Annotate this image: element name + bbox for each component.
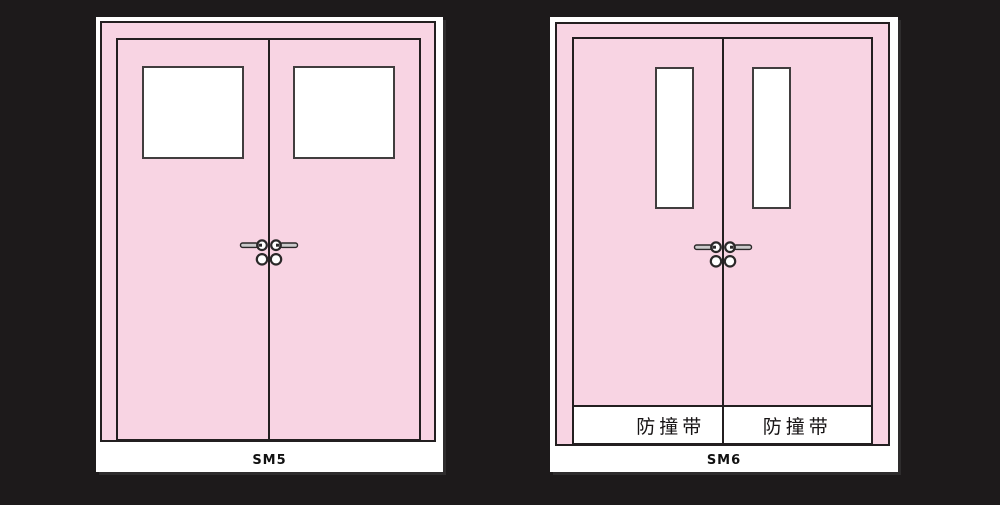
impact-band-label: 防撞带 xyxy=(763,412,832,439)
lock-cylinder-icon xyxy=(270,254,280,264)
lock-cylinder-icon xyxy=(724,256,734,266)
vision-panel xyxy=(142,66,244,159)
lever-handle-icon xyxy=(240,240,266,250)
door-hardware xyxy=(238,236,300,272)
door-hardware-icon xyxy=(692,238,754,274)
canvas: SM5 防撞带 防撞带 xyxy=(0,0,1000,505)
lock-cylinder-icon xyxy=(256,254,266,264)
impact-band: 防撞带 xyxy=(574,405,722,443)
door-figure-sm6: 防撞带 防撞带 xyxy=(550,17,898,472)
door-hardware xyxy=(692,238,754,274)
lock-cylinder-icon xyxy=(710,256,720,266)
figure-label: SM6 xyxy=(550,453,898,468)
lever-handle-icon xyxy=(725,242,751,252)
door-frame: 防撞带 防撞带 xyxy=(555,22,890,446)
door-figure-sm5: SM5 xyxy=(96,17,443,472)
door-opening: 防撞带 防撞带 xyxy=(572,37,873,446)
lever-handle-icon xyxy=(694,242,720,252)
figure-label: SM5 xyxy=(96,453,443,468)
door-hardware-icon xyxy=(238,236,300,272)
impact-band-label: 防撞带 xyxy=(636,412,705,439)
lever-handle-icon xyxy=(271,240,297,250)
vision-panel xyxy=(293,66,395,159)
door-opening xyxy=(116,38,421,442)
vision-panel xyxy=(752,67,791,209)
door-frame xyxy=(100,21,436,442)
impact-band: 防撞带 xyxy=(724,405,872,443)
vision-panel xyxy=(655,67,694,209)
